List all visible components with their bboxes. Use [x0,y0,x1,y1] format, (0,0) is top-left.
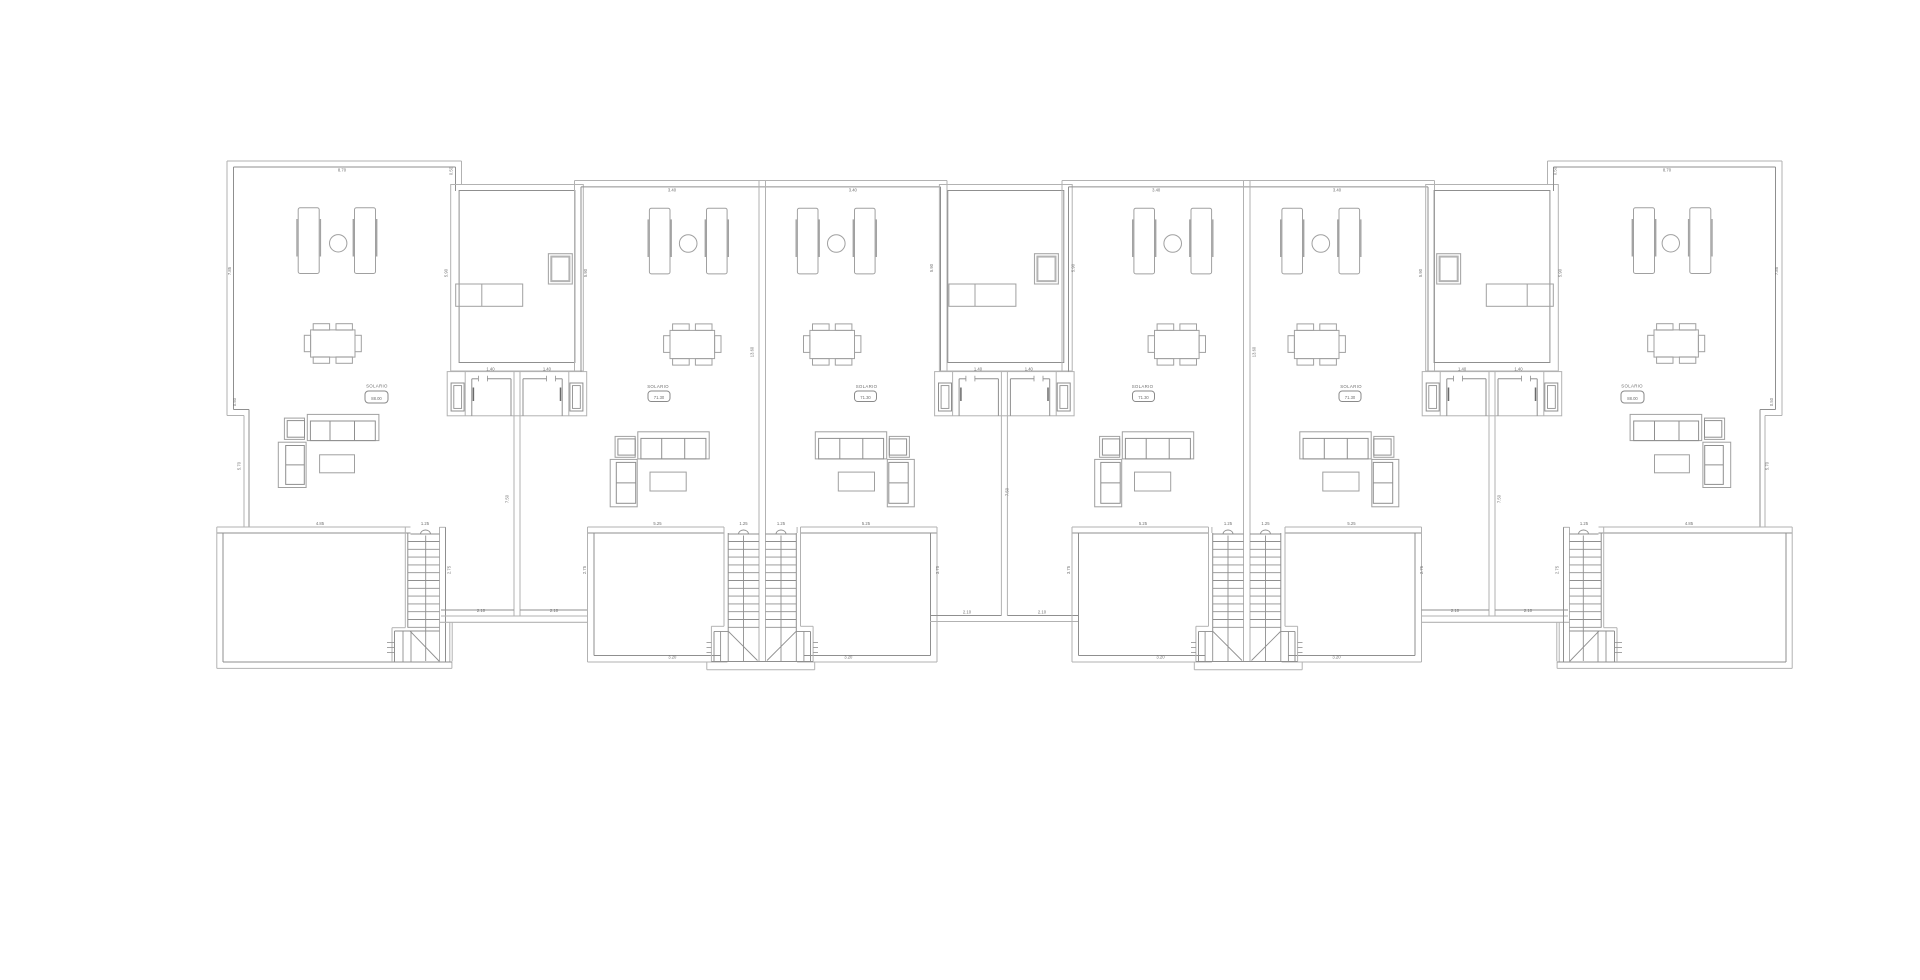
svg-text:1.25: 1.25 [1580,521,1589,526]
svg-text:2.10: 2.10 [550,608,559,613]
svg-text:13.60: 13.60 [1252,346,1257,357]
svg-text:0.50: 0.50 [1769,397,1774,406]
svg-text:0.50: 0.50 [449,166,454,175]
svg-text:5.25: 5.25 [1139,521,1148,526]
svg-text:SOLARIO: SOLARIO [1132,384,1154,389]
svg-text:SOLARIO: SOLARIO [366,384,388,389]
svg-text:7.85: 7.85 [227,266,232,275]
svg-text:SOLARIO: SOLARIO [647,384,669,389]
svg-text:2.10: 2.10 [963,610,972,615]
svg-text:2.75: 2.75 [582,565,587,574]
svg-text:3.40: 3.40 [849,188,858,193]
svg-text:1.40: 1.40 [486,366,495,371]
svg-text:5.90: 5.90 [929,263,934,272]
svg-text:7.50: 7.50 [1497,494,1502,503]
svg-text:2.10: 2.10 [1524,608,1533,613]
svg-text:2.75: 2.75 [1555,565,1560,574]
svg-text:7.85: 7.85 [1774,266,1779,275]
svg-text:1.40: 1.40 [974,366,983,371]
svg-text:1.40: 1.40 [1514,366,1523,371]
svg-text:2.10: 2.10 [477,608,486,613]
svg-text:88.00: 88.00 [1627,396,1638,401]
svg-text:1.40: 1.40 [543,366,552,371]
svg-text:3.75: 3.75 [935,565,940,574]
svg-text:5.90: 5.90 [583,268,588,277]
svg-text:88.00: 88.00 [371,396,382,401]
svg-text:SOLARIO: SOLARIO [856,384,878,389]
svg-text:3.20: 3.20 [1332,655,1341,660]
svg-text:5.90: 5.90 [444,268,449,277]
svg-text:1.25: 1.25 [1261,521,1270,526]
svg-text:0.50: 0.50 [1553,166,1558,175]
svg-text:5.90: 5.90 [1418,268,1423,277]
svg-text:3.20: 3.20 [844,655,853,660]
svg-text:1.40: 1.40 [1025,366,1034,371]
svg-text:3.40: 3.40 [1333,188,1342,193]
svg-text:SOLARIO: SOLARIO [1340,384,1362,389]
svg-text:1.40: 1.40 [1458,366,1467,371]
svg-text:5.90: 5.90 [1071,263,1076,272]
svg-text:1.25: 1.25 [739,521,748,526]
svg-text:SOLARIO: SOLARIO [1621,384,1643,389]
svg-text:2.10: 2.10 [1451,608,1460,613]
svg-text:3.40: 3.40 [1152,188,1161,193]
svg-text:5.25: 5.25 [862,521,871,526]
svg-text:5.90: 5.90 [1558,268,1563,277]
svg-text:7.50: 7.50 [1005,487,1010,496]
svg-text:2.10: 2.10 [1038,610,1047,615]
svg-text:5.25: 5.25 [653,521,662,526]
svg-text:0.50: 0.50 [232,397,237,406]
svg-text:2.75: 2.75 [447,565,452,574]
svg-text:8.70: 8.70 [338,168,347,173]
svg-text:3.75: 3.75 [1066,565,1071,574]
svg-text:4.85: 4.85 [316,521,325,526]
svg-text:71.30: 71.30 [1345,395,1356,400]
svg-text:3.40: 3.40 [668,188,677,193]
svg-text:7.50: 7.50 [505,494,510,503]
svg-text:1.25: 1.25 [777,521,786,526]
svg-text:1.25: 1.25 [1224,521,1233,526]
svg-text:71.30: 71.30 [860,395,871,400]
svg-text:3.20: 3.20 [668,655,677,660]
svg-text:71.30: 71.30 [1138,395,1149,400]
svg-text:4.85: 4.85 [1685,521,1694,526]
svg-text:5.25: 5.25 [1347,521,1356,526]
svg-text:5.70: 5.70 [1765,461,1770,470]
svg-text:8.70: 8.70 [1663,168,1672,173]
svg-text:5.70: 5.70 [237,461,242,470]
svg-text:71.30: 71.30 [654,395,665,400]
svg-text:2.75: 2.75 [1419,565,1424,574]
svg-text:3.20: 3.20 [1156,655,1165,660]
svg-text:13.60: 13.60 [750,346,755,357]
svg-text:1.25: 1.25 [421,521,430,526]
